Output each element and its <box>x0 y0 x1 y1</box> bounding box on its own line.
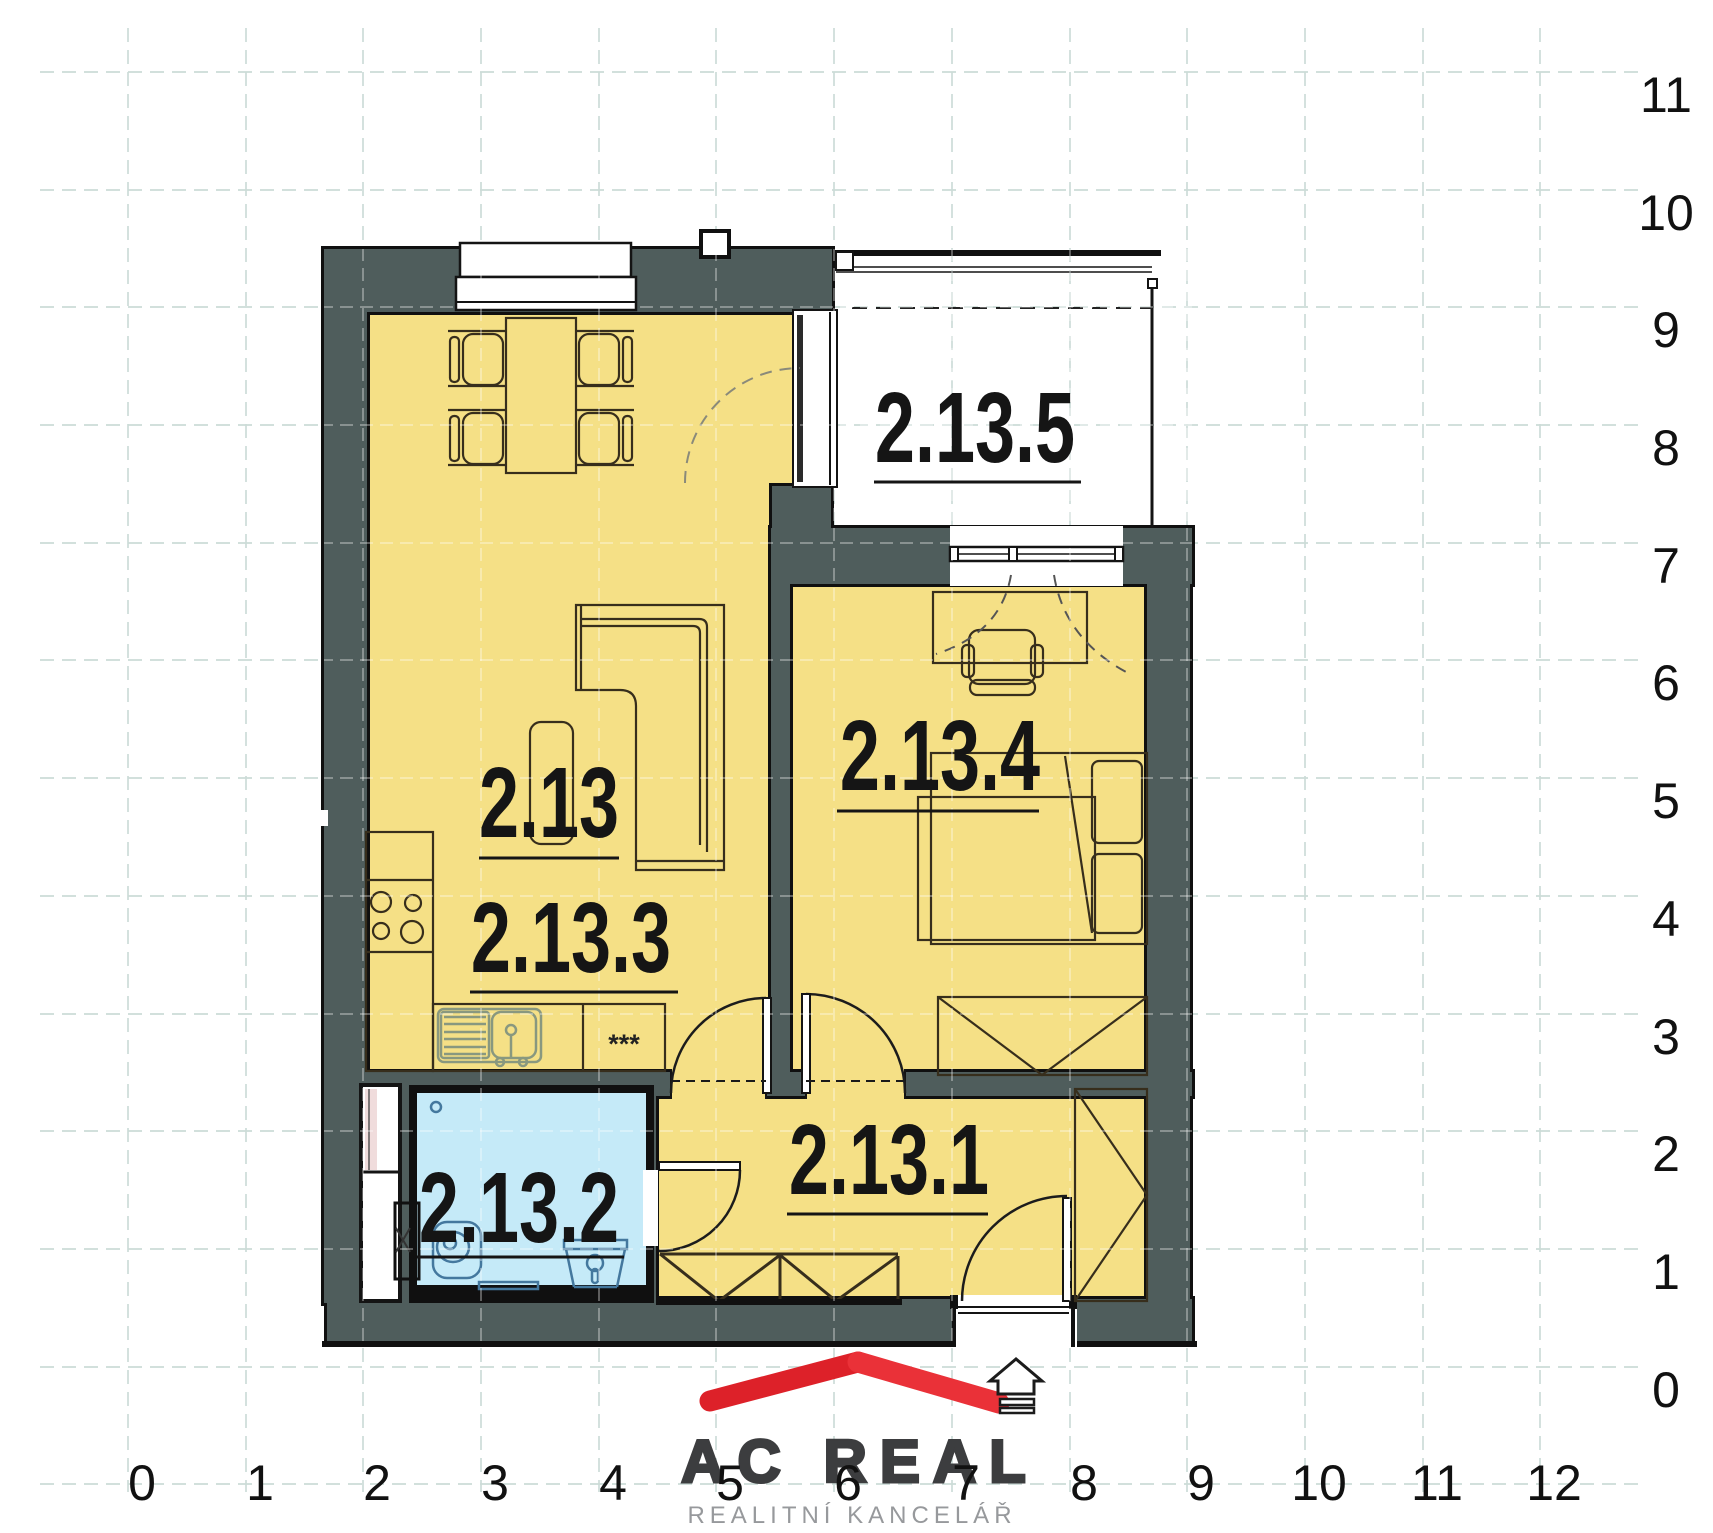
svg-text:2: 2 <box>363 1455 391 1511</box>
svg-text:5: 5 <box>716 1455 744 1511</box>
svg-text:12: 12 <box>1526 1455 1582 1511</box>
svg-text:10: 10 <box>1291 1455 1347 1511</box>
svg-text:8: 8 <box>1070 1455 1098 1511</box>
svg-text:2.13.2: 2.13.2 <box>419 1152 619 1263</box>
svg-text:5: 5 <box>1652 773 1680 829</box>
svg-text:6: 6 <box>834 1455 862 1511</box>
svg-text:2.13.1: 2.13.1 <box>789 1104 989 1215</box>
svg-text:2.13.5: 2.13.5 <box>875 372 1075 483</box>
svg-text:6: 6 <box>1652 655 1680 711</box>
svg-text:4: 4 <box>1652 891 1680 947</box>
svg-text:11: 11 <box>1640 67 1692 123</box>
svg-text:9: 9 <box>1652 302 1680 358</box>
svg-text:0: 0 <box>128 1455 156 1511</box>
svg-text:1: 1 <box>1652 1244 1680 1300</box>
svg-text:0: 0 <box>1652 1362 1680 1418</box>
svg-text:1: 1 <box>246 1455 274 1511</box>
svg-text:2.13.3: 2.13.3 <box>471 882 671 993</box>
svg-text:3: 3 <box>481 1455 509 1511</box>
svg-text:4: 4 <box>599 1455 627 1511</box>
svg-text:8: 8 <box>1652 420 1680 476</box>
svg-text:2: 2 <box>1652 1126 1680 1182</box>
svg-text:2.13: 2.13 <box>479 747 619 858</box>
svg-text:9: 9 <box>1187 1455 1215 1511</box>
svg-text:10: 10 <box>1638 185 1694 241</box>
svg-text:7: 7 <box>952 1455 980 1511</box>
svg-text:11: 11 <box>1411 1455 1463 1511</box>
svg-text:3: 3 <box>1652 1009 1680 1065</box>
svg-text:2.13.4: 2.13.4 <box>840 700 1040 811</box>
svg-text:7: 7 <box>1652 538 1680 594</box>
svg-text:***: *** <box>608 1029 640 1059</box>
